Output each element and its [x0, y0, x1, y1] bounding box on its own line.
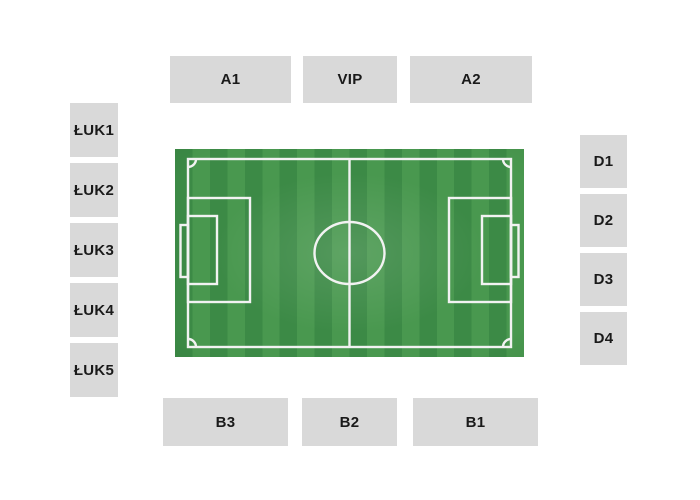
section-luk5[interactable]: ŁUK5: [70, 343, 118, 397]
section-a1[interactable]: A1: [170, 56, 291, 103]
stadium-seating-map: A1 VIP A2 ŁUK1 ŁUK2 ŁUK3 ŁUK4 ŁUK5 D1 D2…: [0, 0, 700, 500]
section-d4[interactable]: D4: [580, 312, 627, 365]
section-luk3[interactable]: ŁUK3: [70, 223, 118, 277]
section-d3[interactable]: D3: [580, 253, 627, 306]
section-b1[interactable]: B1: [413, 398, 538, 446]
section-vip[interactable]: VIP: [303, 56, 397, 103]
section-a2[interactable]: A2: [410, 56, 532, 103]
football-pitch: [175, 149, 524, 357]
section-d2[interactable]: D2: [580, 194, 627, 247]
section-luk2[interactable]: ŁUK2: [70, 163, 118, 217]
pitch-markings-icon: [175, 149, 524, 357]
section-b3[interactable]: B3: [163, 398, 288, 446]
section-luk4[interactable]: ŁUK4: [70, 283, 118, 337]
section-d1[interactable]: D1: [580, 135, 627, 188]
section-b2[interactable]: B2: [302, 398, 397, 446]
section-luk1[interactable]: ŁUK1: [70, 103, 118, 157]
